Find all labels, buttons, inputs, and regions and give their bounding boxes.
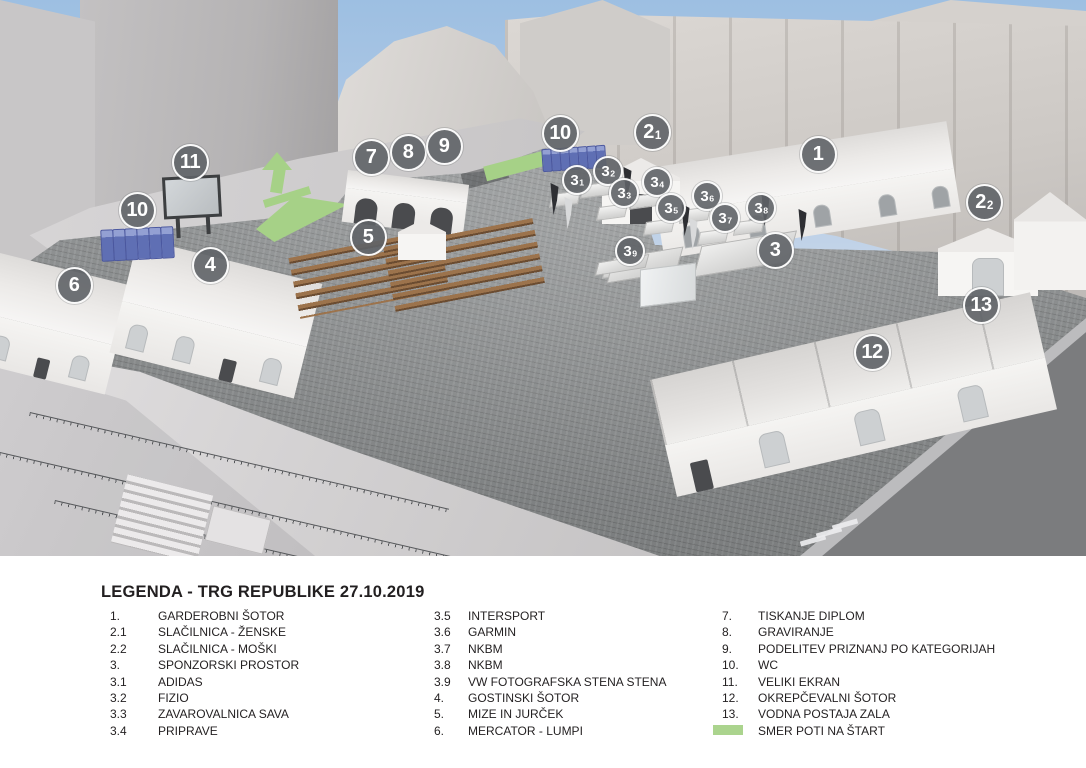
legend-item-number: 8. [722,624,758,640]
marker-number: 10 [126,199,147,222]
legend-item: 2.2SLAČILNICA - MOŠKI [110,641,299,657]
marker-number: 3 [754,200,762,217]
marker-3-8: 38 [746,193,776,223]
legend-item-label: VODNA POSTAJA ZALA [758,706,890,722]
legend-item: 3.8NKBM [434,657,666,673]
legend-item-number [722,723,758,739]
marker-number: 2 [975,191,986,214]
big-screen [162,175,222,220]
marker-number: 3 [664,200,672,217]
legend-item-label: WC [758,657,778,673]
tent-window [956,384,989,423]
legend-item-label: INTERSPORT [468,608,545,624]
legend-column-1: 1.GARDEROBNI ŠOTOR2.1SLAČILNICA - ŽENSKE… [110,608,299,739]
legend-item-number: 6. [434,723,468,739]
marker-5: 5 [350,219,387,256]
legend-item: 4.GOSTINSKI ŠOTOR [434,690,666,706]
legend-item: 13.VODNA POSTAJA ZALA [722,706,995,722]
legend-column-2: 3.5INTERSPORT3.6GARMIN3.7NKBM3.8NKBM3.9V… [434,608,666,739]
marker-number: 10 [549,122,570,145]
marker-number: 3 [601,163,609,180]
legend-item-label: GARMIN [468,624,516,640]
legend-item-label: SLAČILNICA - MOŠKI [158,641,277,657]
legend-item-label: ZAVAROVALNICA SAVA [158,706,289,722]
marker-number: 11 [180,151,200,174]
marker-number: 3 [570,172,578,189]
legend-item-label: MIZE IN JURČEK [468,706,563,722]
marker-number: 3 [770,239,781,262]
marker-number: 3 [718,210,726,227]
legend-item-number: 4. [434,690,468,706]
big-screen-face [165,178,219,217]
legend-item: 1.GARDEROBNI ŠOTOR [110,608,299,624]
marker-3-1: 31 [562,165,592,195]
legend-item-number: 3.6 [434,624,468,640]
legend-item: 9.PODELITEV PRIZNANJ PO KATEGORIJAH [722,641,995,657]
legend-item-label: OKREPČEVALNI ŠOTOR [758,690,896,706]
route-direction-swatch [713,725,743,735]
legend-item-number: 12. [722,690,758,706]
wc-cabin [160,226,175,259]
marker-number: 7 [366,146,377,169]
legend-item-label: GARDEROBNI ŠOTOR [158,608,284,624]
marker-12: 12 [854,334,891,371]
marker-subnumber: 5 [673,205,677,215]
wc-cabins-left [100,226,174,262]
marker-subnumber: 2 [610,168,614,178]
marker-number: 6 [69,274,80,297]
tent-window [0,334,11,362]
legend-item-label: GRAVIRANJE [758,624,834,640]
legend-item-number: 3.5 [434,608,468,624]
legend-item: 3.3ZAVAROVALNICA SAVA [110,706,299,722]
marker-subnumber: 1 [655,129,661,142]
marker-4: 4 [192,247,229,284]
tent-door [690,459,714,492]
marker-number: 3 [650,174,658,191]
legend-item-label: SPONZORSKI PROSTOR [158,657,299,673]
legend-item-label: NKBM [468,641,503,657]
marker-number: 8 [403,141,414,164]
legend-item-label: VELIKI EKRAN [758,674,840,690]
legend-item-label: ADIDAS [158,674,203,690]
tent-window [931,185,951,209]
legend-item-number: 11. [722,674,758,690]
legend-item: 12.OKREPČEVALNI ŠOTOR [722,690,995,706]
legend-item: 3.2FIZIO [110,690,299,706]
legend-item-number: 3.7 [434,641,468,657]
legend-item-number: 3.1 [110,674,158,690]
legend-item-label: MERCATOR - LUMPI [468,723,583,739]
marker-3-7: 37 [710,203,740,233]
tent-window [68,354,91,382]
marker-2-2: 22 [966,184,1003,221]
marker-number: 3 [617,185,625,202]
site-plan-3d-render: 1212233132333435363738394567891010111213 [0,0,1086,556]
marker-11: 11 [172,144,209,181]
marker-3: 3 [757,232,794,269]
legend-item-number: 1. [110,608,158,624]
marker-subnumber: 2 [987,199,993,212]
legend-item-number: 3.9 [434,674,468,690]
tent-window [877,194,897,218]
legend-item-number: 10. [722,657,758,673]
tent-window [172,335,197,365]
legend-item: 5.MIZE IN JURČEK [434,706,666,722]
legend-item-number: 13. [722,706,758,722]
marker-7: 7 [353,139,390,176]
legend-item: 6.MERCATOR - LUMPI [434,723,666,739]
legend-item-number: 3.2 [110,690,158,706]
legend-column-3: 7.TISKANJE DIPLOM8.GRAVIRANJE9.PODELITEV… [722,608,995,739]
marker-number: 13 [970,294,991,317]
legend-item-label: SMER POTI NA ŠTART [758,723,885,739]
tent-door [218,358,237,383]
legend-item: 3.5INTERSPORT [434,608,666,624]
legend-item: 3.1ADIDAS [110,674,299,690]
legend-item-number: 9. [722,641,758,657]
legend-item: 3.4PRIPRAVE [110,723,299,739]
marker-1: 1 [800,136,837,173]
event-site-plan-page: 1212233132333435363738394567891010111213… [0,0,1086,768]
legend-item-label: PRIPRAVE [158,723,218,739]
legend-item-label: SLAČILNICA - ŽENSKE [158,624,286,640]
legend-item: 3.6GARMIN [434,624,666,640]
tent-window [125,323,150,353]
marker-number: 12 [861,341,882,364]
marker-number: 5 [363,226,374,249]
legend-item-number: 5. [434,706,468,722]
legend-item-label: GOSTINSKI ŠOTOR [468,690,579,706]
legend-item: 3.9VW FOTOGRAFSKA STENA STENA [434,674,666,690]
legend-item: 3.7NKBM [434,641,666,657]
marker-3-5: 35 [656,193,686,223]
legend-item-number: 7. [722,608,758,624]
legend-item: 2.1SLAČILNICA - ŽENSKE [110,624,299,640]
legend-item-number: 3. [110,657,158,673]
legend-item: SMER POTI NA ŠTART [722,723,995,739]
legend-item-number: 3.8 [434,657,468,673]
legend-panel: LEGENDA - TRG REPUBLIKE 27.10.2019 1.GAR… [0,556,1086,768]
legend-item: 10.WC [722,657,995,673]
marker-number: 9 [439,135,450,158]
legend-item-label: FIZIO [158,690,189,706]
legend-item-number: 3.3 [110,706,158,722]
tent-door [33,357,50,380]
marker-number: 3 [700,188,708,205]
marker-8: 8 [390,134,427,171]
legend-item-number: 3.4 [110,723,158,739]
legend-item: 3.SPONZORSKI PROSTOR [110,657,299,673]
marker-9: 9 [426,128,463,165]
tent-window [757,430,790,469]
tent-window [812,204,832,228]
marker-subnumber: 9 [632,248,636,258]
marker-13: 13 [963,287,1000,324]
legend-item-label: NKBM [468,657,503,673]
tent-window [259,356,284,386]
legend-item: 11.VELIKI EKRAN [722,674,995,690]
marker-10-left: 10 [119,192,156,229]
legend-item-label: VW FOTOGRAFSKA STENA STENA [468,674,666,690]
legend-item: 8.GRAVIRANJE [722,624,995,640]
marker-2-1: 21 [634,114,671,151]
tent-window [853,408,886,447]
marker-subnumber: 1 [579,177,583,187]
marker-number: 3 [623,243,631,260]
marker-subnumber: 4 [659,179,663,189]
marker-subnumber: 8 [763,205,767,215]
legend-title: LEGENDA - TRG REPUBLIKE 27.10.2019 [101,583,424,602]
legend-item: 7.TISKANJE DIPLOM [722,608,995,624]
marker-3-9: 39 [615,236,645,266]
marker-6: 6 [56,267,93,304]
marker-subnumber: 6 [709,193,713,203]
marker-3-3: 33 [609,178,639,208]
legend-item-label: TISKANJE DIPLOM [758,608,865,624]
marker-subnumber: 3 [626,190,630,200]
marker-number: 4 [205,254,216,277]
legend-item-label: PODELITEV PRIZNANJ PO KATEGORIJAH [758,641,995,657]
marker-subnumber: 7 [727,215,731,225]
legend-item-number: 2.1 [110,624,158,640]
marker-number: 1 [813,143,824,166]
photo-wall-3-9 [640,263,696,308]
legend-item-number: 2.2 [110,641,158,657]
marker-10-top: 10 [542,115,579,152]
marker-number: 2 [643,121,654,144]
